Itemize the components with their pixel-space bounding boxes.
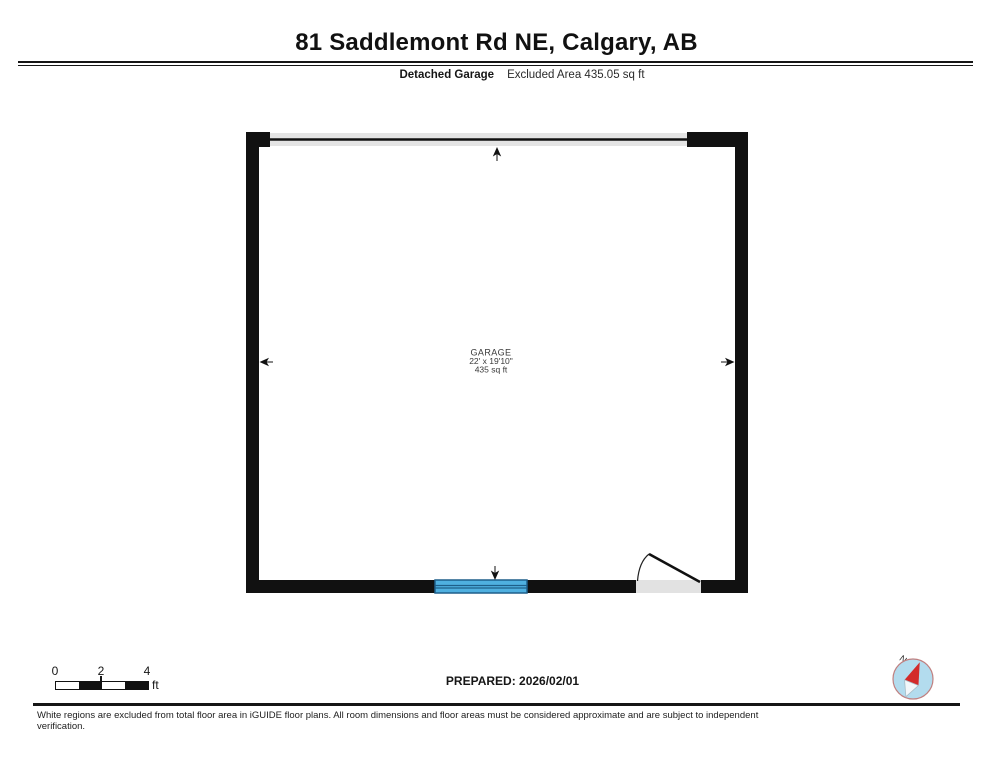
bottom-wall-middle-segment bbox=[527, 580, 636, 593]
bottom-wall-left-segment bbox=[246, 580, 435, 593]
bottom-wall-right-segment bbox=[701, 580, 748, 593]
window-glass bbox=[435, 580, 527, 593]
disclaimer-text: White regions are excluded from total fl… bbox=[37, 710, 797, 732]
right-wall bbox=[735, 132, 748, 593]
left-wall bbox=[246, 132, 259, 593]
door-opening bbox=[636, 580, 701, 593]
floor-plan-page: 81 Saddlemont Rd NE, Calgary, AB Detache… bbox=[0, 0, 993, 768]
top-wall-left-segment bbox=[246, 132, 270, 147]
entry-door bbox=[636, 554, 701, 593]
footer-divider bbox=[33, 703, 960, 706]
window bbox=[435, 580, 527, 593]
room-label: GARAGE 22' x 19'10" 435 sq ft bbox=[469, 348, 513, 375]
top-wall-right-segment bbox=[687, 132, 748, 147]
room-area: 435 sq ft bbox=[475, 365, 508, 375]
prepared-date: PREPARED: 2026/02/01 bbox=[0, 674, 993, 688]
floor-plan-drawing: GARAGE 22' x 19'10" 435 sq ft N bbox=[0, 0, 993, 768]
door-leaf bbox=[649, 554, 700, 582]
door-swing-arc bbox=[638, 554, 650, 581]
garage-door bbox=[270, 133, 687, 146]
